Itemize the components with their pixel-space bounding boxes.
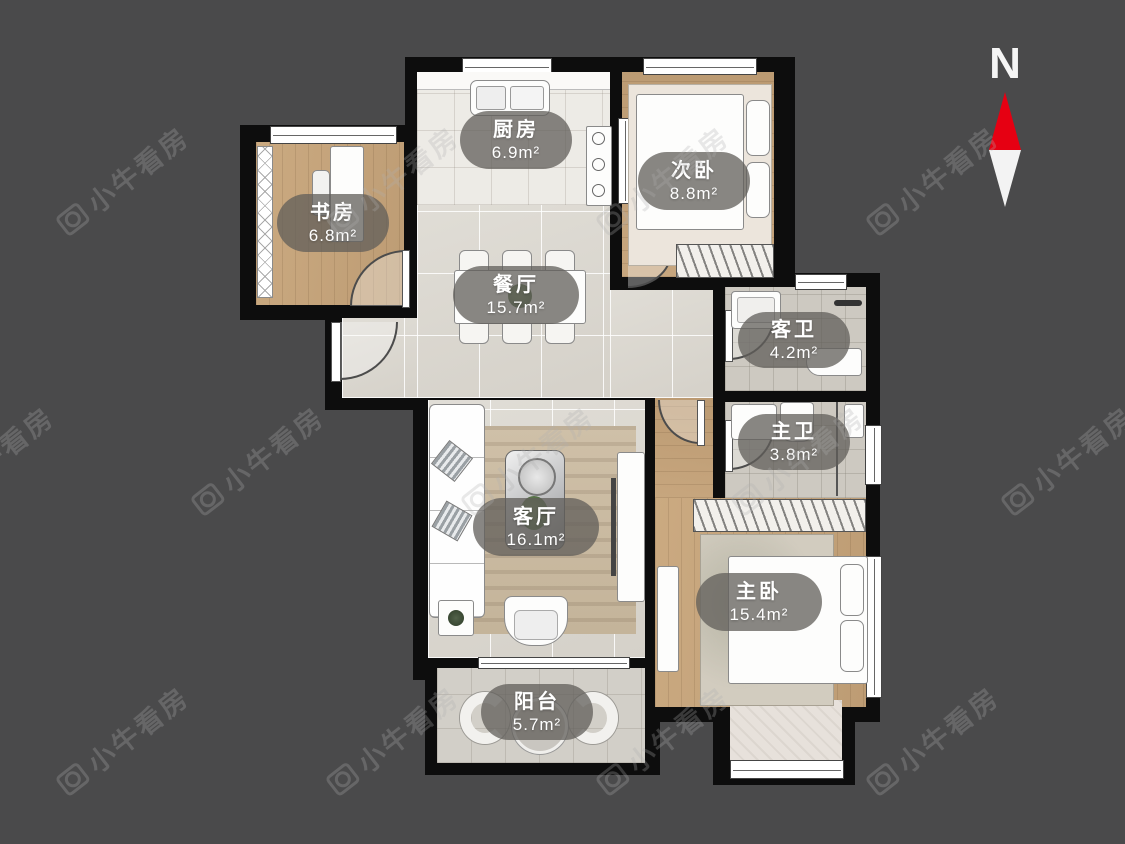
room-name: 次卧 (671, 159, 717, 184)
watermark-text: 小牛看房 (78, 116, 197, 221)
bay-window (730, 760, 844, 779)
watermark: 小牛看房 (185, 396, 332, 523)
room-name: 阳台 (514, 690, 560, 715)
balcony-sliding-door (478, 657, 630, 669)
watermark-camera-icon (864, 201, 901, 237)
watermark-text: 小牛看房 (78, 676, 197, 781)
room-area: 6.8m² (309, 226, 357, 246)
side-table-flower (448, 610, 464, 626)
room-area: 6.9m² (492, 143, 540, 163)
burner-3 (592, 184, 605, 197)
compass-north-label: N (960, 42, 1050, 86)
room-area: 5.7m² (513, 715, 561, 735)
coffee-table-tray (518, 458, 556, 496)
bedroom2-pillow-2 (746, 162, 770, 218)
room-name: 主卧 (736, 580, 782, 605)
dining-chair-bottom-3 (545, 322, 575, 344)
watermark: 小牛看房 (50, 116, 197, 243)
entry-door-leaf (331, 322, 341, 382)
room-name: 书房 (310, 201, 356, 226)
watermark-camera-icon (189, 481, 226, 517)
watermark-text: 小牛看房 (0, 396, 61, 501)
sink-basin-right (510, 86, 544, 110)
room-label-balcony: 阳台 5.7m² (481, 684, 593, 740)
room-name: 厨房 (493, 118, 539, 143)
bedroom2-wardrobe (676, 244, 774, 278)
room-area: 8.8m² (670, 184, 718, 204)
burner-1 (592, 132, 605, 145)
corridor-floor (610, 290, 713, 398)
watermark-camera-icon (999, 481, 1036, 517)
floorplan-canvas: 厨房 6.9m² 次卧 8.8m² 书房 6.8m² 餐厅 15.7m² 客卫 … (0, 0, 1125, 844)
study-window (270, 126, 397, 144)
compass: N (960, 42, 1050, 217)
master-bath-window (865, 425, 882, 485)
tv-stand (617, 452, 645, 602)
master-pillow-1 (840, 564, 864, 616)
room-label-study: 书房 6.8m² (277, 194, 389, 252)
watermark: 小牛看房 (995, 396, 1125, 523)
hallway-door-leaf (697, 400, 705, 446)
bay-floor (730, 700, 842, 762)
dining-chair-bottom-2 (502, 322, 532, 344)
room-label-second-bedroom: 次卧 8.8m² (638, 152, 750, 210)
room-label-living: 客厅 16.1m² (473, 498, 599, 556)
room-label-master-bedroom: 主卧 15.4m² (696, 573, 822, 631)
guest-bath-window (795, 274, 847, 290)
compass-arrow-icon (985, 92, 1025, 210)
room-area: 16.1m² (507, 530, 566, 550)
watermark-text: 小牛看房 (213, 396, 332, 501)
room-label-kitchen: 厨房 6.9m² (460, 111, 572, 169)
master-dresser (657, 566, 679, 672)
room-label-master-bath: 主卫 3.8m² (738, 414, 850, 470)
armchair-cushion (514, 610, 558, 640)
study-door-leaf (402, 250, 410, 308)
room-name: 客卫 (771, 318, 817, 343)
room-area: 15.4m² (730, 605, 789, 625)
room-area: 3.8m² (770, 445, 818, 465)
burner-2 (592, 158, 605, 171)
dining-chair-bottom-1 (459, 322, 489, 344)
room-label-guest-bath: 客卫 4.2m² (738, 312, 850, 368)
room-area: 15.7m² (487, 298, 546, 318)
room-name: 主卫 (771, 420, 817, 445)
master-pillow-2 (840, 620, 864, 672)
watermark-camera-icon (54, 201, 91, 237)
bookshelf (257, 146, 273, 298)
room-name: 餐厅 (493, 273, 539, 298)
watermark-camera-icon (864, 761, 901, 797)
watermark: 小牛看房 (50, 676, 197, 803)
watermark-camera-icon (324, 761, 361, 797)
watermark-camera-icon (54, 761, 91, 797)
bedroom2-window (643, 58, 757, 75)
room-area: 4.2m² (770, 343, 818, 363)
master-window (866, 556, 882, 698)
watermark-text: 小牛看房 (888, 676, 1007, 781)
tv (611, 478, 616, 576)
sink-basin-left (476, 86, 506, 110)
master-wardrobe (693, 499, 866, 532)
room-name: 客厅 (513, 505, 559, 530)
watermark-text: 小牛看房 (1023, 396, 1125, 501)
watermark: 小牛看房 (0, 396, 61, 523)
guest-bath-faucet (834, 300, 862, 306)
room-label-dining: 餐厅 15.7m² (453, 266, 579, 324)
bedroom2-pillow-1 (746, 100, 770, 156)
